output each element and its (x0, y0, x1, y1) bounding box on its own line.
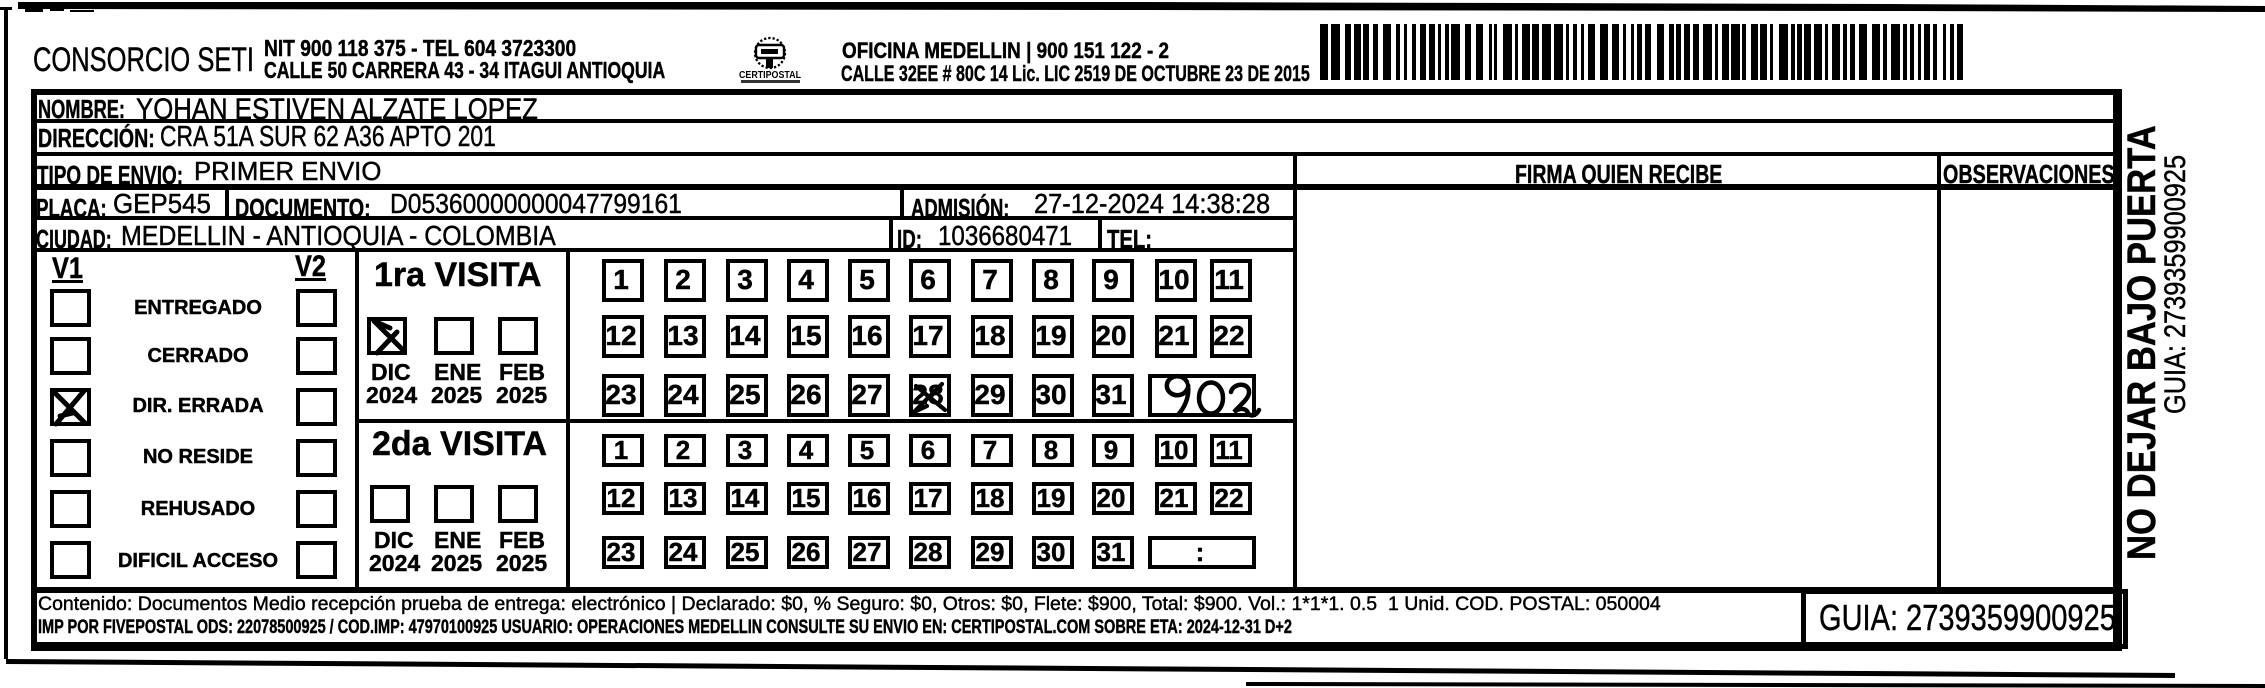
svg-text:CERTIPOSTAL: CERTIPOSTAL (739, 69, 801, 81)
